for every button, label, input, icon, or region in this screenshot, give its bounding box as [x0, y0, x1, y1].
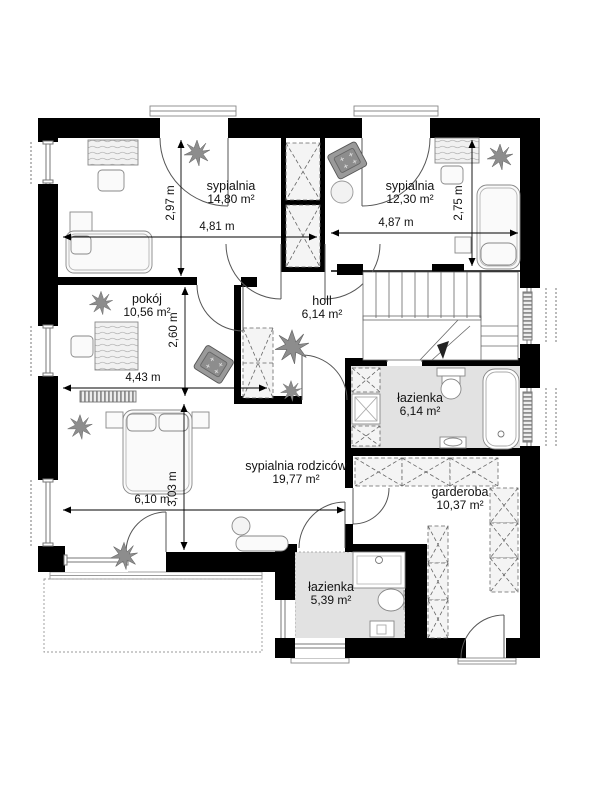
plant-icon: [89, 291, 112, 314]
plant-icon: [275, 330, 309, 364]
plant-icon: [487, 144, 513, 170]
washing-machine: [370, 621, 394, 637]
chair-person: [232, 517, 250, 535]
terrace-outline: [44, 572, 262, 652]
sink: [440, 437, 466, 448]
bathtub: [483, 369, 519, 449]
chair: [441, 166, 463, 184]
sink: [378, 589, 404, 611]
chair: [71, 336, 93, 357]
chair: [98, 170, 124, 191]
nightstand: [455, 237, 471, 253]
furniture-parents-bedroom: [106, 410, 288, 551]
desk: [88, 140, 138, 165]
desk: [95, 322, 138, 370]
furniture-pokoj: [71, 322, 234, 402]
washing-machine: [352, 394, 380, 424]
floor-plan-drawing: [0, 0, 608, 793]
staircase: [363, 272, 518, 360]
pillow: [71, 236, 91, 254]
nightstand: [106, 412, 123, 428]
plant-icon: [68, 415, 93, 440]
nightstand: [192, 412, 209, 428]
side-table: [70, 212, 92, 232]
pillow: [127, 414, 156, 431]
round-table: [331, 181, 353, 203]
radiator: [80, 391, 136, 402]
armchair: [193, 344, 234, 384]
bench: [236, 536, 288, 551]
plant-icon: [184, 140, 210, 166]
floor-plan: sypialnia 14,80 m² sypialnia 12,30 m² po…: [0, 0, 608, 793]
shower: [353, 552, 405, 588]
pillow: [481, 243, 516, 265]
furniture-bedroom-1: [66, 140, 152, 273]
